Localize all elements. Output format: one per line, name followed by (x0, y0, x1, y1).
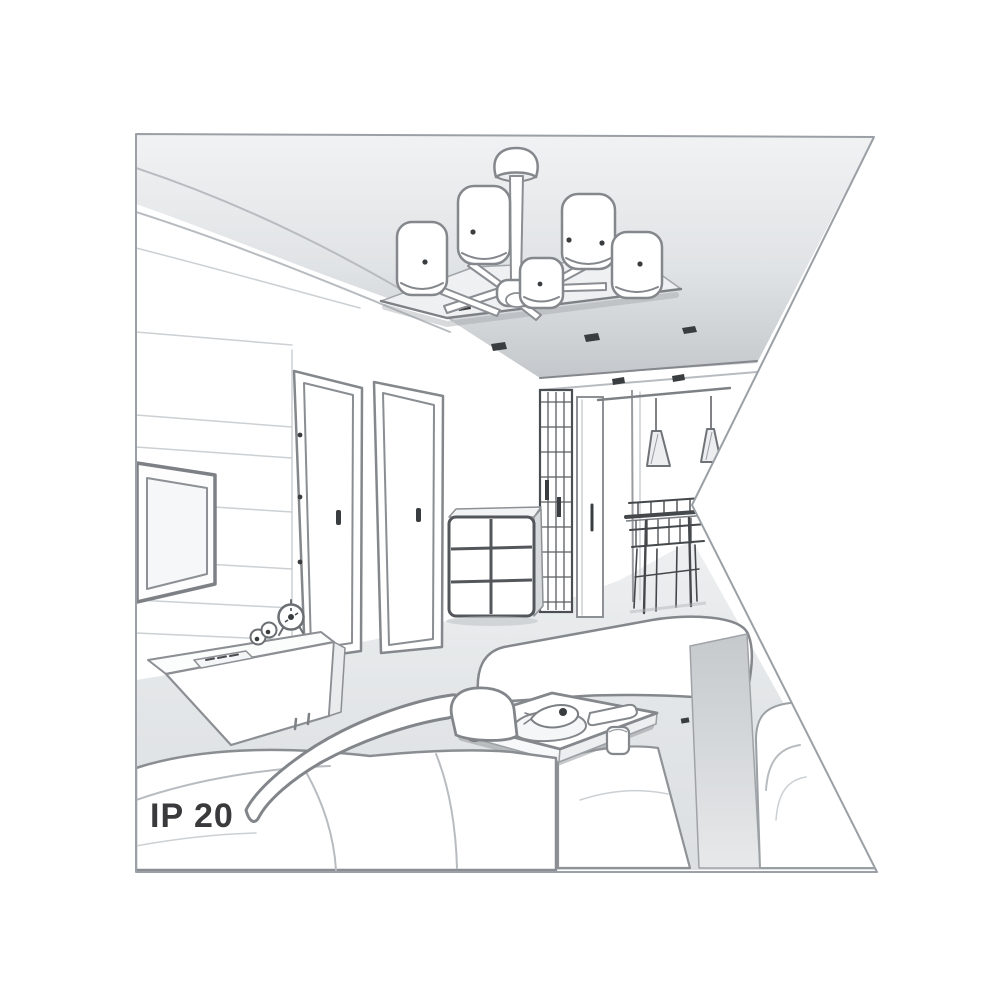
ip-rating-label: IP 20 (150, 797, 234, 836)
wardrobe-handle (545, 480, 549, 500)
door-handle (416, 508, 421, 522)
drawer-chest (446, 507, 543, 626)
room-sketch (0, 0, 1000, 1000)
door-hinge (298, 560, 303, 565)
sofa-armrest (451, 688, 517, 741)
product-illustration: IP 20 (0, 0, 1000, 1000)
interior-door-right (374, 382, 443, 653)
sofa-armrest-side (690, 634, 760, 868)
chandelier-canopy (494, 148, 537, 177)
wardrobe (540, 390, 572, 612)
closet-panel (577, 397, 603, 617)
door-hinge (298, 495, 303, 500)
door-handle (336, 510, 341, 525)
wardrobe-handle (557, 497, 561, 517)
wall-tv (137, 463, 215, 602)
door-hinge (298, 433, 303, 438)
